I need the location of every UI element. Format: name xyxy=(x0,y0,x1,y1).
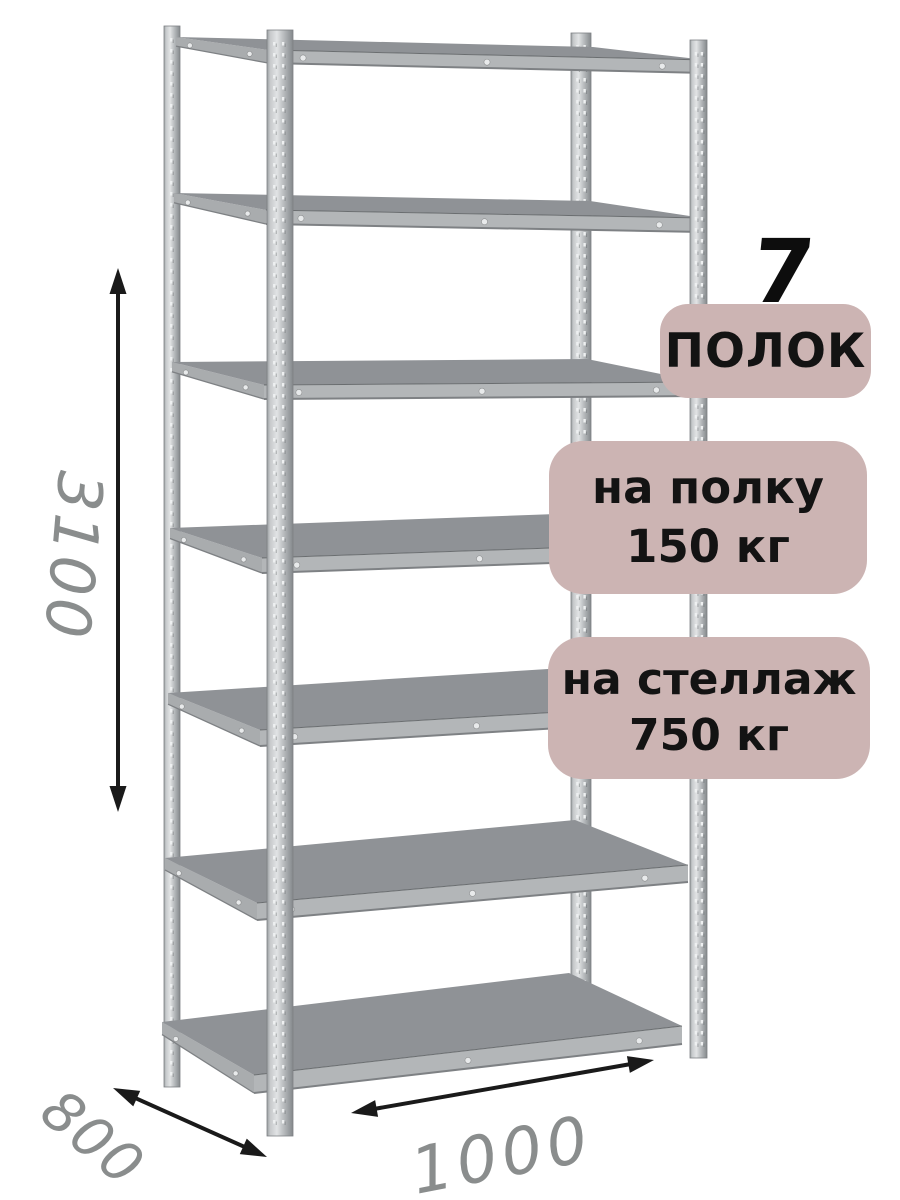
rack-load-badge: на стеллаж 750 кг xyxy=(548,637,870,779)
rack-load-line2: 750 кг xyxy=(629,708,789,764)
shelf-count-badge-label: ПОЛОК xyxy=(665,324,867,379)
back-left-post xyxy=(164,26,180,1087)
height-arrow xyxy=(110,268,127,812)
shelf-load-line2: 150 кг xyxy=(626,518,790,577)
front-left-post xyxy=(267,30,293,1136)
shelf-7 xyxy=(162,973,682,1093)
shelf-6 xyxy=(165,820,688,920)
shelving-rack-illustration xyxy=(0,0,900,1200)
height-dimension-label: 3100 xyxy=(35,469,112,644)
shelf-load-line1: на полку xyxy=(592,459,824,518)
rack-load-line1: на стеллаж xyxy=(562,652,857,708)
shelf-count-number: 7 xyxy=(748,228,818,316)
shelf-2 xyxy=(174,193,703,232)
shelf-3 xyxy=(172,359,700,399)
shelf-1 xyxy=(176,37,706,73)
product-diagram: 7 ПОЛОК на полку 150 кг на стеллаж 750 к… xyxy=(0,0,900,1200)
shelf-load-badge: на полку 150 кг xyxy=(549,441,867,594)
